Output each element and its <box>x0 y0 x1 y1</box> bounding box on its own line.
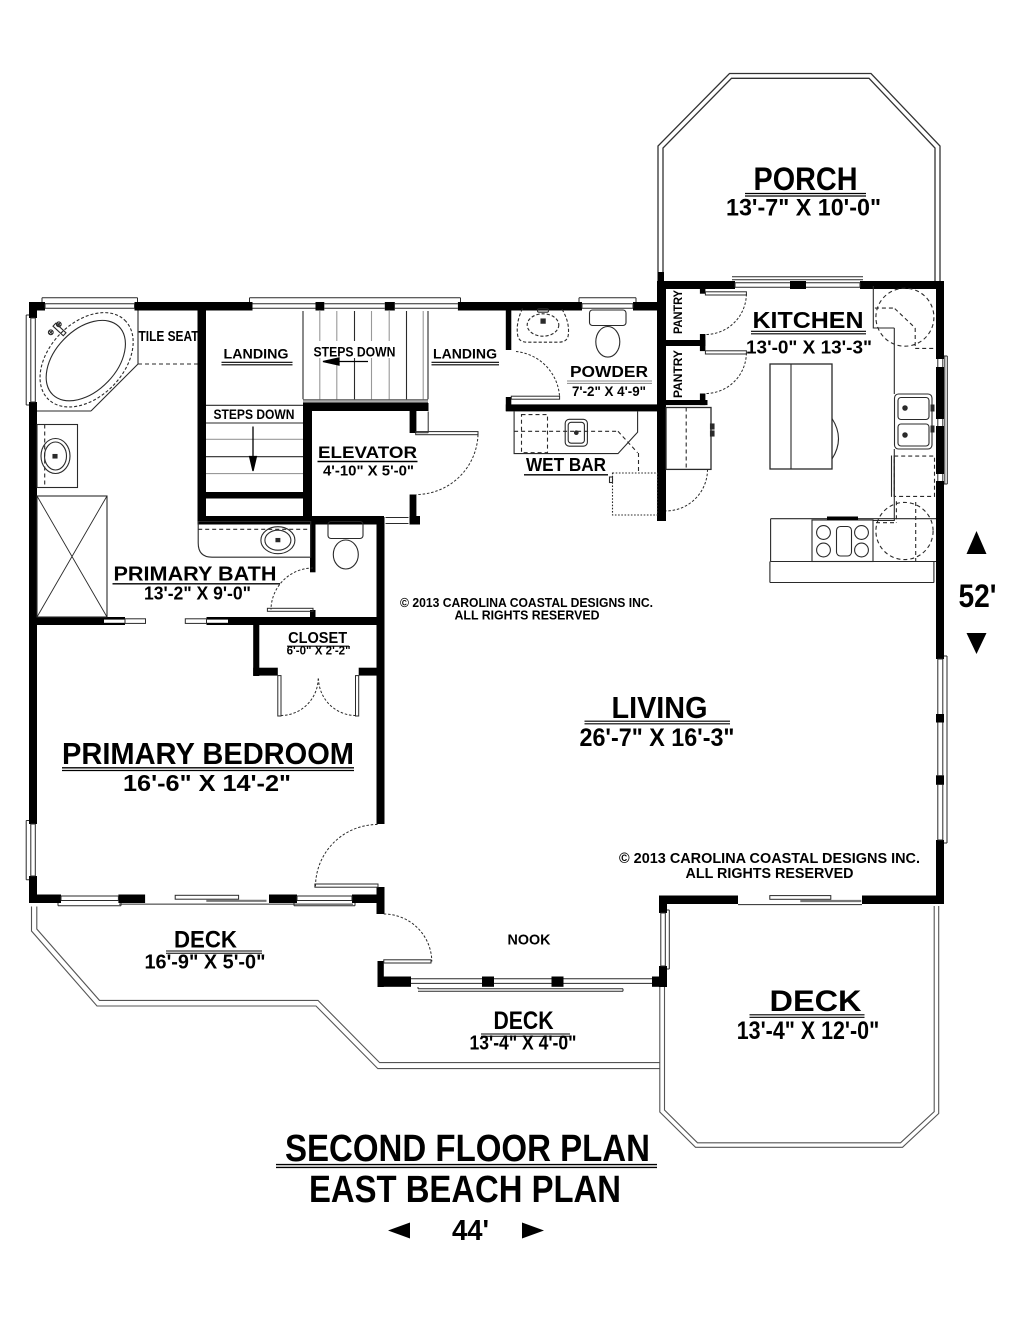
svg-text:44': 44' <box>452 1215 489 1247</box>
svg-text:13'-4" X 4'-0": 13'-4" X 4'-0" <box>470 1032 577 1055</box>
svg-text:ALL RIGHTS RESERVED: ALL RIGHTS RESERVED <box>455 609 600 623</box>
svg-text:PRIMARY BATH: PRIMARY BATH <box>114 564 277 586</box>
svg-text:EAST BEACH PLAN: EAST BEACH PLAN <box>309 1169 621 1211</box>
svg-text:ALL RIGHTS RESERVED: ALL RIGHTS RESERVED <box>686 866 854 882</box>
svg-text:STEPS DOWN: STEPS DOWN <box>214 407 295 422</box>
svg-text:13'-0" X 13'-3": 13'-0" X 13'-3" <box>746 337 872 358</box>
svg-text:DECK: DECK <box>770 985 862 1018</box>
svg-text:LANDING: LANDING <box>224 346 289 362</box>
svg-text:16'-6" X 14'-2": 16'-6" X 14'-2" <box>123 770 291 796</box>
svg-text:6'-0" X 2'-2": 6'-0" X 2'-2" <box>287 644 351 658</box>
svg-text:LANDING: LANDING <box>433 346 497 362</box>
svg-text:NOOK: NOOK <box>508 932 551 949</box>
svg-text:16'-9" X 5'-0": 16'-9" X 5'-0" <box>145 952 266 974</box>
svg-text:PANTRY: PANTRY <box>671 290 685 334</box>
svg-text:4'-10" X 5'-0": 4'-10" X 5'-0" <box>323 463 414 480</box>
svg-text:© 2013 CAROLINA COASTAL DESIGN: © 2013 CAROLINA COASTAL DESIGNS INC. <box>619 851 920 867</box>
svg-text:TILE SEAT: TILE SEAT <box>139 328 199 345</box>
svg-text:26'-7" X 16'-3": 26'-7" X 16'-3" <box>580 724 735 752</box>
svg-text:PRIMARY BEDROOM: PRIMARY BEDROOM <box>62 737 354 771</box>
svg-text:KITCHEN: KITCHEN <box>753 307 864 333</box>
svg-text:13'-4" X 12'-0": 13'-4" X 12'-0" <box>737 1017 880 1045</box>
svg-text:52': 52' <box>959 578 997 614</box>
svg-text:ELEVATOR: ELEVATOR <box>318 443 417 462</box>
svg-text:WET BAR: WET BAR <box>526 455 606 475</box>
svg-text:13'-7" X 10'-0": 13'-7" X 10'-0" <box>726 195 881 222</box>
svg-text:7'-2" X 4'-9": 7'-2" X 4'-9" <box>572 383 646 399</box>
svg-text:STEPS DOWN: STEPS DOWN <box>314 345 396 360</box>
svg-text:PORCH: PORCH <box>754 161 858 197</box>
svg-text:13'-2" X 9'-0": 13'-2" X 9'-0" <box>144 584 251 604</box>
svg-text:POWDER: POWDER <box>570 364 648 381</box>
svg-text:SECOND FLOOR PLAN: SECOND FLOOR PLAN <box>285 1128 650 1170</box>
svg-text:DECK: DECK <box>174 927 238 954</box>
svg-text:LIVING: LIVING <box>612 690 708 725</box>
svg-text:PANTRY: PANTRY <box>671 350 685 398</box>
